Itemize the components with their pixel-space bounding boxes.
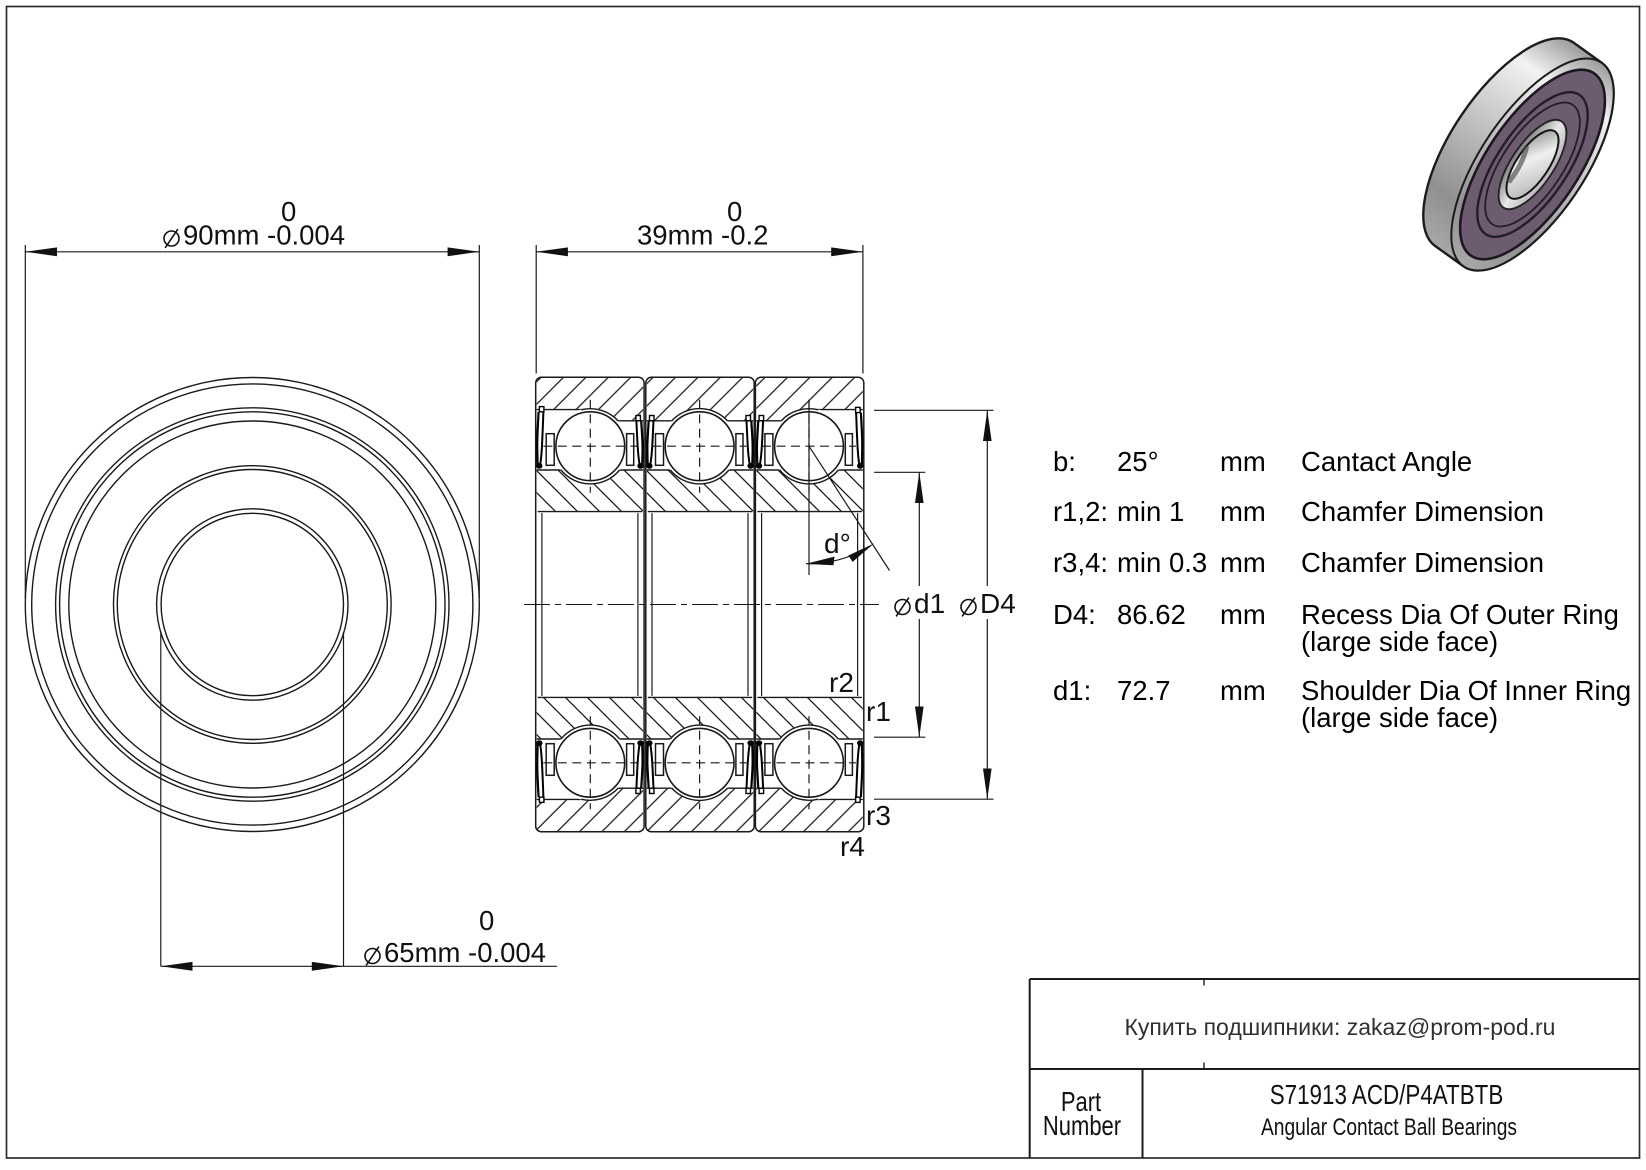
svg-text:Chamfer Dimension: Chamfer Dimension	[1301, 496, 1544, 527]
svg-text:65mm -0.004: 65mm -0.004	[384, 937, 546, 968]
svg-text:Angular Contact Ball Bearings: Angular Contact Ball Bearings	[1261, 1113, 1517, 1141]
svg-text:0: 0	[281, 196, 296, 227]
svg-text:39mm -0.2: 39mm -0.2	[637, 220, 768, 251]
svg-text:(large side face): (large side face)	[1301, 702, 1498, 733]
svg-text:(large side face): (large side face)	[1301, 626, 1498, 657]
svg-text:mm: mm	[1220, 599, 1266, 630]
svg-text:0: 0	[727, 196, 742, 227]
svg-text:Number: Number	[1043, 1111, 1121, 1142]
svg-text:r3: r3	[866, 800, 891, 831]
svg-text:r1: r1	[866, 696, 891, 727]
svg-text:S71913 ACD/P4ATBTB: S71913 ACD/P4ATBTB	[1270, 1080, 1504, 1111]
svg-text:d1:: d1:	[1053, 675, 1091, 706]
svg-text:D4:: D4:	[1053, 599, 1096, 630]
svg-text:Chamfer Dimension: Chamfer Dimension	[1301, 547, 1544, 578]
svg-text:Cantact Angle: Cantact Angle	[1301, 446, 1472, 477]
svg-text:mm: mm	[1220, 547, 1266, 578]
svg-text:86.62: 86.62	[1117, 599, 1186, 630]
svg-text:Купить подшипники: zakaz@prom-: Купить подшипники: zakaz@prom-pod.ru	[1125, 1014, 1556, 1040]
svg-text:b:: b:	[1053, 446, 1076, 477]
svg-text:25°: 25°	[1117, 446, 1159, 477]
svg-text:D4: D4	[980, 588, 1016, 619]
svg-text:d°: d°	[824, 528, 851, 559]
svg-text:mm: mm	[1220, 675, 1266, 706]
svg-text:r2: r2	[829, 667, 854, 698]
svg-text:r1,2:: r1,2:	[1053, 496, 1108, 527]
svg-text:min 0.3: min 0.3	[1117, 547, 1207, 578]
svg-text:mm: mm	[1220, 496, 1266, 527]
svg-text:0: 0	[479, 905, 494, 936]
svg-text:90mm -0.004: 90mm -0.004	[183, 220, 345, 251]
svg-text:mm: mm	[1220, 446, 1266, 477]
svg-text:d1: d1	[914, 588, 945, 619]
svg-text:r3,4:: r3,4:	[1053, 547, 1108, 578]
svg-text:min 1: min 1	[1117, 496, 1184, 527]
svg-text:72.7: 72.7	[1117, 675, 1171, 706]
svg-text:r4: r4	[840, 831, 865, 862]
